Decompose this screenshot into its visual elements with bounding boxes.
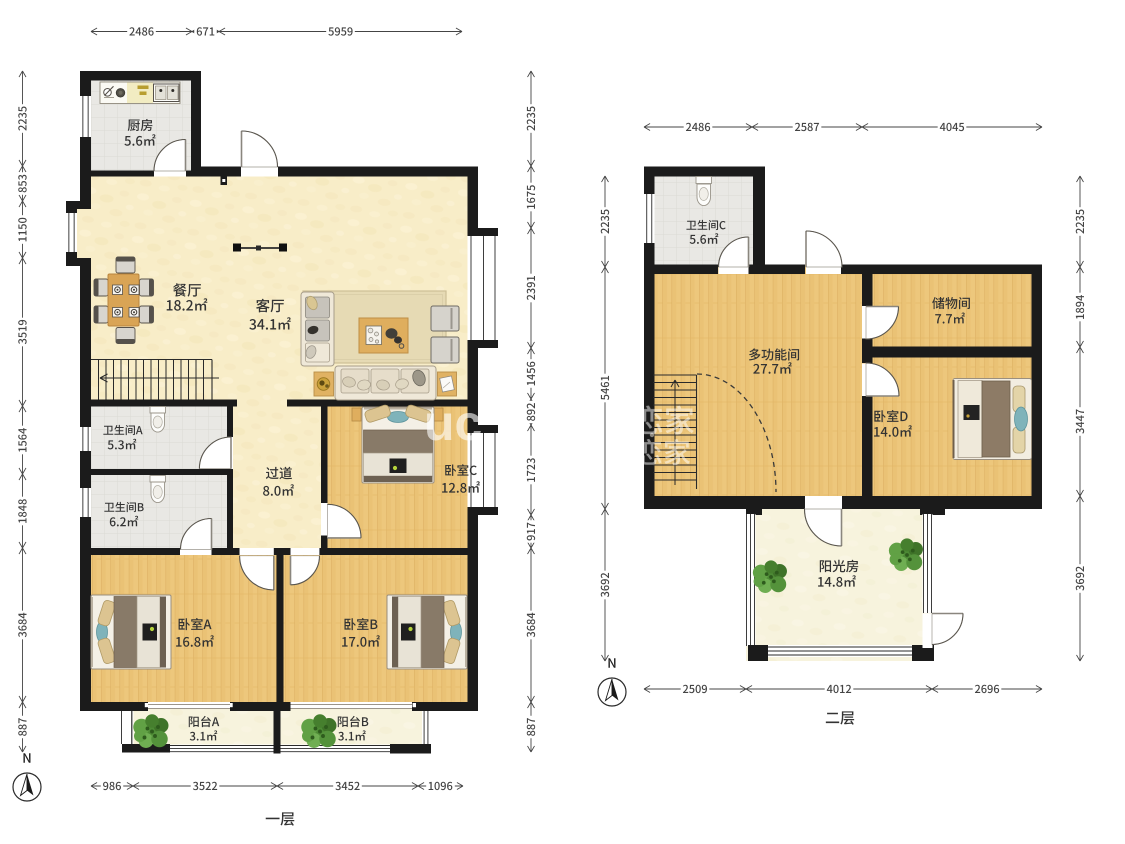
svg-text:uc: uc: [424, 395, 482, 451]
